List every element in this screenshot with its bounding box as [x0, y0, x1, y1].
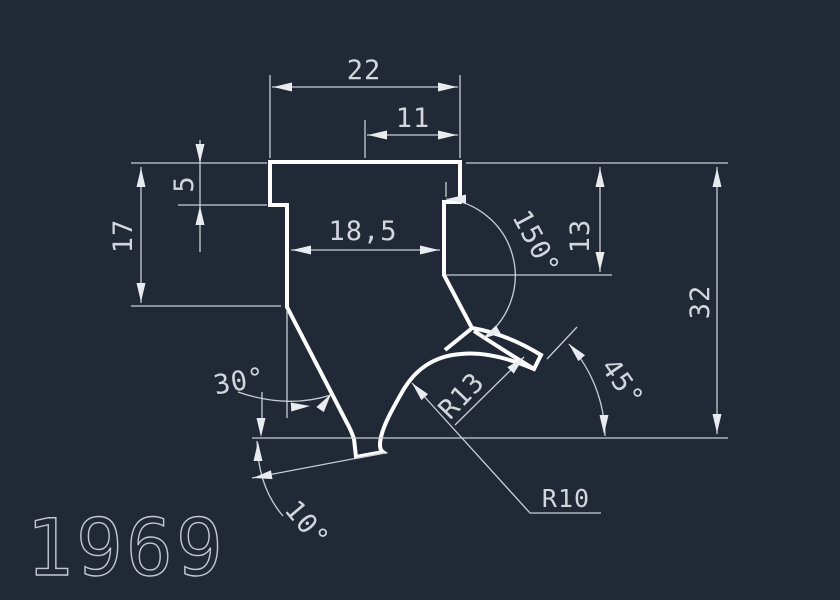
profile-main-outline [270, 162, 541, 457]
dim-label-left-height: 17 [108, 219, 139, 254]
arrow-45-bottom [600, 415, 609, 434]
arrow-11-left [368, 131, 387, 140]
ext-ray-10 [252, 453, 384, 478]
arrow-baseline-down [257, 418, 266, 437]
dim-label-right-upper-height: 13 [565, 219, 596, 254]
arrow-22-left [273, 83, 292, 92]
arrow-10-up [254, 442, 263, 461]
technical-drawing: 22 11 5 17 18,5 13 32 150° 30° 45° 10° R… [0, 0, 840, 600]
dim-label-top-width: 22 [347, 55, 382, 86]
dim-label-top-inner-width: 11 [396, 103, 431, 134]
arrow-5-top [196, 144, 205, 163]
dim-label-base-angle: 10° [278, 495, 335, 555]
arrow-13-top [596, 168, 605, 187]
dim-label-neck-width: 18,5 [328, 216, 397, 247]
arrow-13-bottom [596, 252, 605, 271]
arrow-17-top [137, 168, 146, 187]
dim-label-step-depth: 5 [169, 175, 200, 192]
arrow-45-top [566, 341, 585, 361]
arrow-18-5-right [420, 246, 439, 255]
profile-outline [270, 162, 541, 457]
arrow-10-ray [252, 470, 272, 482]
dim-label-hook-radius: R13 [433, 367, 491, 426]
arrow-18-5-left [292, 246, 311, 255]
arrow-32-bottom [713, 414, 722, 433]
dimension-arrowheads [137, 83, 722, 483]
cad-drawing-canvas: 22 11 5 17 18,5 13 32 150° 30° 45° 10° R… [0, 0, 840, 600]
arrow-30-arc [291, 402, 310, 412]
arrow-17-bottom [137, 283, 146, 302]
dim-label-slant-angle: 30° [211, 362, 267, 402]
dim-label-bottom-radius: R10 [542, 484, 590, 513]
dim-label-overall-height: 32 [685, 285, 716, 320]
dim-label-tip-angle: 45° [594, 353, 649, 413]
arc-45 [569, 344, 605, 436]
arc-150 [446, 199, 515, 339]
dimension-lines [131, 75, 728, 516]
profile-junction-edge [445, 329, 471, 350]
part-number-title: 1969 [26, 504, 226, 594]
arrow-32-top [713, 168, 722, 187]
arrow-22-right [438, 83, 457, 92]
ext-ray-45 [547, 327, 577, 359]
arrow-11-right [438, 131, 457, 140]
arrow-5-bottom [196, 206, 205, 225]
dimension-labels: 22 11 5 17 18,5 13 32 150° 30° 45° 10° R… [108, 55, 716, 554]
